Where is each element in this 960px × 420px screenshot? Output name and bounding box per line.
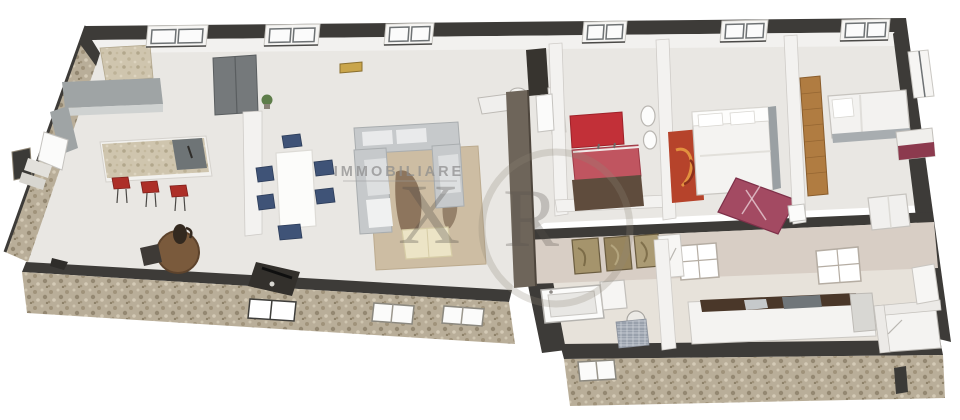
sofa-cushion-1 — [362, 130, 393, 146]
window-3 — [384, 23, 434, 45]
dining-table — [276, 150, 316, 229]
watermark-monogram-x: X — [398, 166, 460, 262]
bathroom1-door — [536, 94, 554, 132]
single-bed-pillow — [832, 98, 854, 118]
bidet — [644, 131, 657, 149]
kitchen-stone-feature-wall — [100, 45, 153, 82]
watermark-monogram-r: R — [503, 172, 559, 265]
entrance-door-dark — [526, 48, 549, 96]
sofa-pillow — [366, 198, 393, 228]
window-5 — [720, 20, 768, 42]
kitchen2-east-door — [912, 264, 939, 304]
window-6 — [840, 19, 890, 41]
dining-chair-6 — [278, 224, 302, 240]
island-sink — [172, 138, 207, 170]
plant — [262, 95, 273, 106]
dining-chair-3 — [315, 188, 335, 204]
kitchen-counter-top — [62, 78, 163, 108]
window-4 — [582, 21, 627, 43]
toilet — [641, 106, 655, 126]
bar-stool-2 — [141, 181, 159, 193]
dining-chair-1 — [282, 134, 302, 148]
bar-stool-1 — [112, 177, 130, 189]
bar-stool-3 — [170, 185, 188, 197]
wall-picture-gold — [340, 62, 362, 73]
jug — [173, 224, 187, 244]
pillow-1 — [698, 113, 723, 127]
pillow-2 — [730, 111, 755, 125]
south-lower-facade-stone — [564, 355, 945, 406]
dining-chair-4 — [256, 166, 274, 182]
window-1 — [146, 25, 208, 47]
window-2 — [264, 24, 320, 46]
kitchen-chair — [140, 244, 162, 266]
floorplan-render: IMMOBILIARE X R — [0, 0, 960, 420]
red-accent-wall — [570, 112, 624, 148]
sofa-cushion-2 — [396, 128, 427, 144]
cooktop — [782, 295, 822, 309]
art-panel-1 — [572, 238, 601, 274]
plant-pot — [264, 104, 270, 109]
kitchen2-appliance — [850, 293, 876, 332]
dining-chair-2 — [314, 160, 334, 176]
dining-chair-5 — [257, 194, 275, 210]
bedroom2-desk — [896, 128, 935, 160]
facade-vent — [894, 366, 908, 394]
mosaic-floor — [616, 319, 649, 348]
floorplan-svg: IMMOBILIARE X R — [0, 0, 960, 420]
bathroom1-wood-floor — [572, 175, 644, 211]
bedroom2-door — [788, 204, 806, 222]
